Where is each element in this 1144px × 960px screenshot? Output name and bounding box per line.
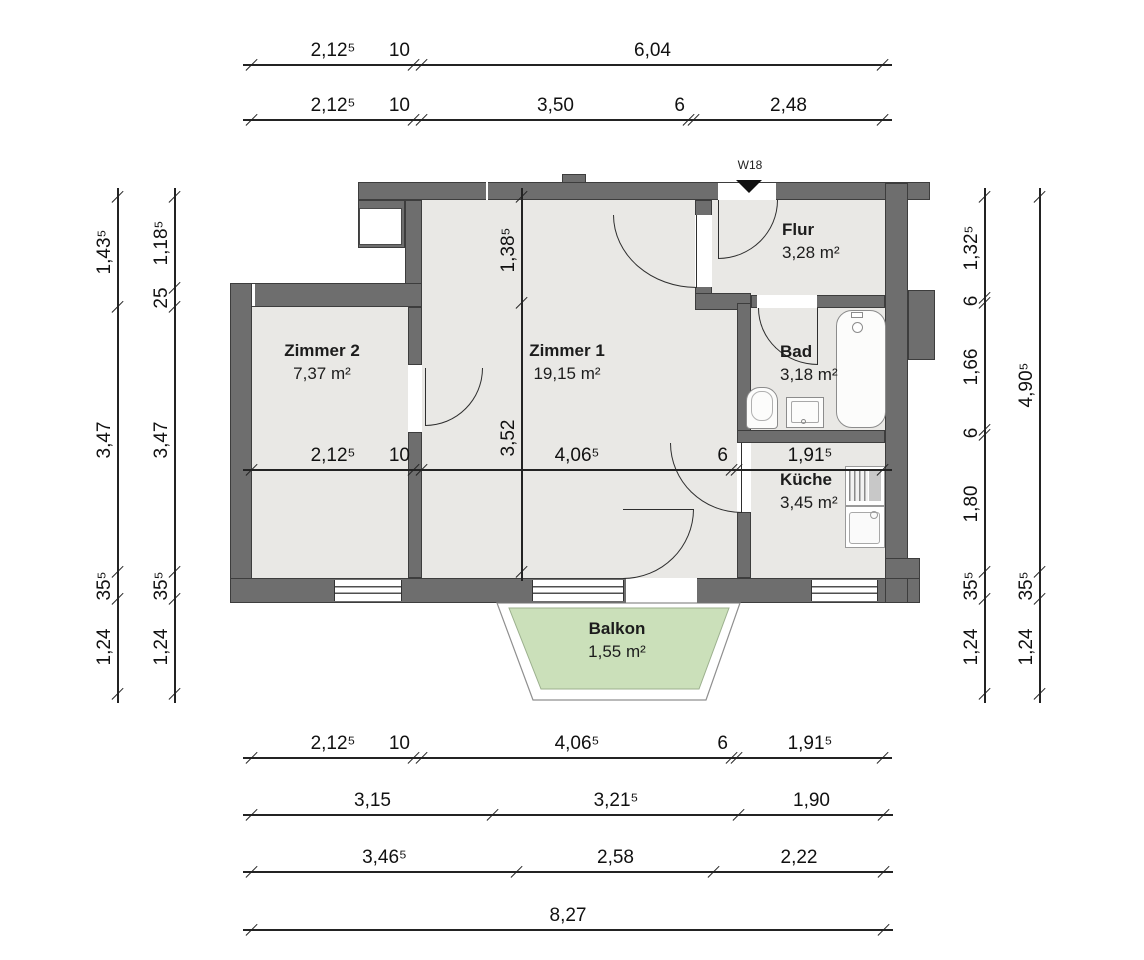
dimension-label: 6 [962,393,982,473]
door-opening-flur [695,215,712,287]
dimension-label: 10 [376,446,410,466]
wall-segment [562,174,586,183]
dimension-label: 3,52 [499,398,519,478]
entrance-label: W18 [731,158,769,172]
dimension-line-bottom_row4 [243,929,893,930]
wall-segment [408,307,422,365]
toilet-bowl [751,391,773,421]
dimension-label: 1,38⁵ [499,210,519,290]
dimension-label: 3,15 [252,791,493,811]
dimension-label: 2,58 [517,848,714,868]
dimension-label: 6 [651,96,685,116]
dimension-label: 1,24 [95,607,115,687]
dimension-label: 1,80 [962,464,982,544]
dimension-label: 2,22 [714,848,884,868]
room-area: 3,18 m² [780,363,890,386]
dimension-line-top_row2 [243,119,892,120]
room-label-balkon: Balkon 1,55 m² [555,617,679,663]
room-label-zimmer2: Zimmer 2 7,37 m² [262,339,382,385]
dimension-line-left_outer [117,188,118,703]
room-area: 3,28 m² [782,241,892,264]
wall-segment [358,182,930,200]
wall-segment [737,512,751,578]
wall-segment [230,283,252,603]
room-area: 7,37 m² [262,362,382,385]
room-name: Zimmer 2 [262,339,382,362]
entrance-arrow-icon [736,180,762,193]
room-area: 3,45 m² [780,491,890,514]
dimension-line-left_inner [174,188,175,703]
washbasin-drain [801,419,806,424]
wall-recess [359,208,402,245]
dimension-label: 4,06⁵ [422,446,732,466]
room-label-zimmer1: Zimmer 1 19,15 m² [507,339,627,385]
dimension-label: 10 [376,734,410,754]
dimension-line-bottom_row3 [243,871,893,872]
room-name: Küche [780,468,890,491]
wall-segment [230,283,422,307]
dimension-line-right_outer [1039,188,1040,703]
room-area: 19,15 m² [507,362,627,385]
wall-segment [885,558,920,579]
dimension-label: 3,46⁵ [252,848,517,868]
dimension-label: 10 [376,96,410,116]
dimension-label: 1,24 [152,607,172,687]
dimension-label: 10 [376,41,410,61]
dimension-label: 6,04 [422,41,883,61]
room-area: 1,55 m² [555,640,679,663]
floor-plan: 2,12⁵106,042,12⁵103,5062,482,12⁵104,06⁵6… [0,0,1144,960]
dimension-label: 6 [694,446,728,466]
dimension-label: 1,91⁵ [737,446,883,466]
dimension-label: 1,90 [739,791,884,811]
wall-segment [908,290,935,360]
room-name: Balkon [555,617,679,640]
dimension-label: 3,21⁵ [493,791,739,811]
bathtub-drain [852,322,863,333]
room-label-bad: Bad 3,18 m² [780,340,890,386]
dimension-label: 25 [152,258,172,338]
wall-segment [737,430,885,443]
dimension-line-bottom_row1 [243,757,892,758]
bathtub-faucet [851,312,863,318]
dimension-line-right_inner [984,188,985,703]
dimension-label: 1,43⁵ [95,212,115,292]
room-label-flur: Flur 3,28 m² [782,218,892,264]
dimension-label: 3,47 [95,400,115,480]
room-label-kueche: Küche 3,45 m² [780,468,890,514]
dimension-label: 2,48 [694,96,883,116]
dimension-label: 1,91⁵ [737,734,883,754]
dimension-label: 4,90⁵ [1017,345,1037,425]
dimension-label: 8,27 [252,906,884,926]
wall-seam [486,182,488,200]
dimension-line-top_row1 [243,64,892,65]
dimension-line-bottom_row2 [243,814,893,815]
dimension-label: 3,50 [422,96,689,116]
dimension-label: 1,24 [962,607,982,687]
room-name: Bad [780,340,890,363]
room-name: Flur [782,218,892,241]
room-name: Zimmer 1 [507,339,627,362]
window [811,580,878,601]
wall-seam [252,284,255,306]
door-opening-bad [757,295,817,308]
dimension-label: 1,24 [1017,607,1037,687]
window [334,580,402,601]
dimension-label: 3,47 [152,400,172,480]
dimension-label: 6 [694,734,728,754]
dimension-label: 4,06⁵ [422,734,732,754]
